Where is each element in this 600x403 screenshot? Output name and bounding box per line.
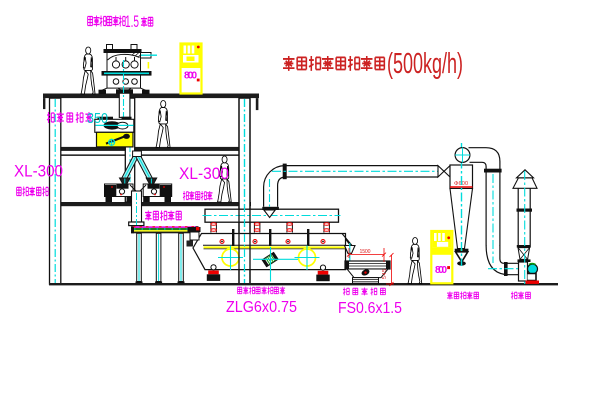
svg-text:545: 545 xyxy=(382,269,388,279)
svg-text:1.5: 1.5 xyxy=(125,12,139,31)
svg-text:XL-300: XL-300 xyxy=(14,163,63,181)
svg-text:(500kg/h): (500kg/h) xyxy=(387,48,463,80)
svg-text:ZLG6x0.75: ZLG6x0.75 xyxy=(226,299,297,316)
svg-text:FS0.6x1.5: FS0.6x1.5 xyxy=(338,300,402,317)
svg-text:800: 800 xyxy=(184,71,197,82)
svg-text:XL-300: XL-300 xyxy=(179,164,229,183)
svg-text:800: 800 xyxy=(435,265,447,276)
svg-text:350: 350 xyxy=(87,110,108,127)
svg-text:1500: 1500 xyxy=(360,249,371,255)
